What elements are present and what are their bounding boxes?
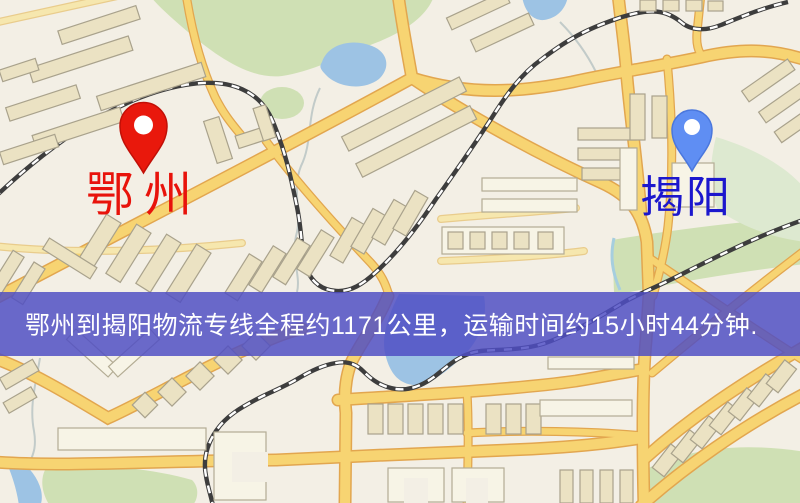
route-info-banner: 鄂州到揭阳物流专线全程约1171公里，运输时间约15小时44分钟. (0, 292, 800, 356)
destination-pin-icon[interactable] (672, 110, 712, 171)
map-graphic (0, 0, 800, 503)
origin-city-label: 鄂州 (86, 172, 202, 220)
destination-city-label: 揭阳 (640, 176, 732, 220)
map-canvas[interactable]: 鄂州 揭阳 鄂州到揭阳物流专线全程约1171公里，运输时间约15小时44分钟. (0, 0, 800, 503)
route-info-text: 鄂州到揭阳物流专线全程约1171公里，运输时间约15小时44分钟. (25, 306, 758, 342)
origin-pin-icon[interactable] (120, 103, 167, 174)
